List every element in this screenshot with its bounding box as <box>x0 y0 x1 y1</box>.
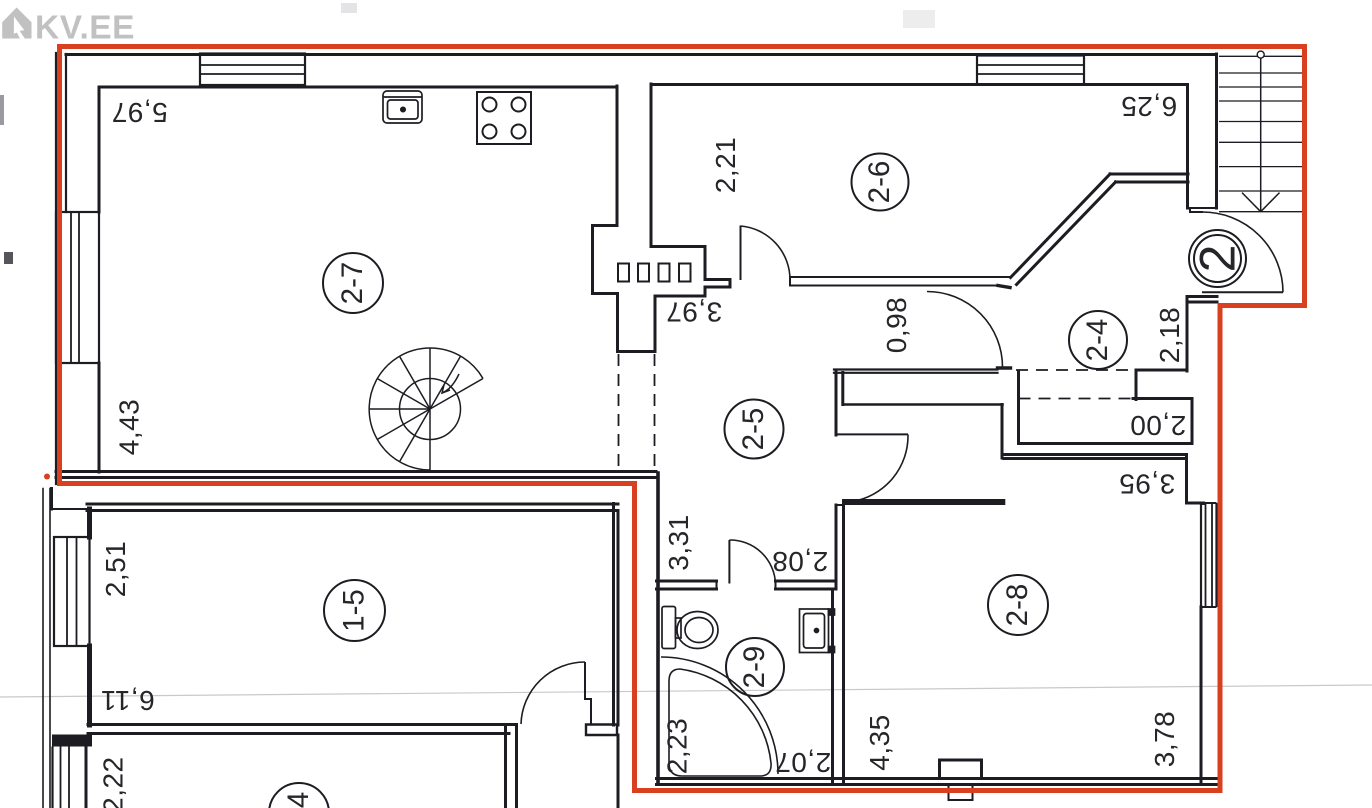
svg-text:2,08: 2,08 <box>772 546 829 577</box>
svg-text:2,18: 2,18 <box>1154 307 1185 364</box>
svg-text:3,97: 3,97 <box>666 297 723 328</box>
svg-text:2-5: 2-5 <box>737 408 770 451</box>
svg-text:2,22: 2,22 <box>98 756 129 808</box>
svg-text:0,98: 0,98 <box>881 297 912 354</box>
svg-text:4,43: 4,43 <box>114 399 145 456</box>
svg-text:2,23: 2,23 <box>662 718 693 775</box>
svg-text:2-6: 2-6 <box>863 161 896 204</box>
svg-text:2-8: 2-8 <box>1001 584 1034 627</box>
svg-text:2-9: 2-9 <box>738 646 771 689</box>
svg-text:5,97: 5,97 <box>111 97 168 128</box>
svg-text:2-4: 2-4 <box>1081 319 1114 362</box>
svg-text:KV.EE: KV.EE <box>35 10 135 47</box>
svg-text:2-7: 2-7 <box>336 262 369 305</box>
svg-text:3,31: 3,31 <box>663 514 694 571</box>
svg-text:2,07: 2,07 <box>775 747 832 778</box>
svg-text:3,78: 3,78 <box>1149 711 1180 768</box>
svg-text:2: 2 <box>1190 245 1246 273</box>
svg-text:6,11: 6,11 <box>100 685 154 716</box>
svg-text:6,25: 6,25 <box>1121 91 1178 122</box>
svg-text:3,95: 3,95 <box>1119 469 1176 500</box>
svg-text:2,00: 2,00 <box>1130 410 1187 441</box>
svg-text:2,51: 2,51 <box>100 541 131 598</box>
svg-text:2,21: 2,21 <box>710 137 741 194</box>
svg-text:1-4: 1-4 <box>282 792 315 808</box>
svg-text:1-5: 1-5 <box>338 589 371 632</box>
svg-text:4,35: 4,35 <box>864 714 895 771</box>
